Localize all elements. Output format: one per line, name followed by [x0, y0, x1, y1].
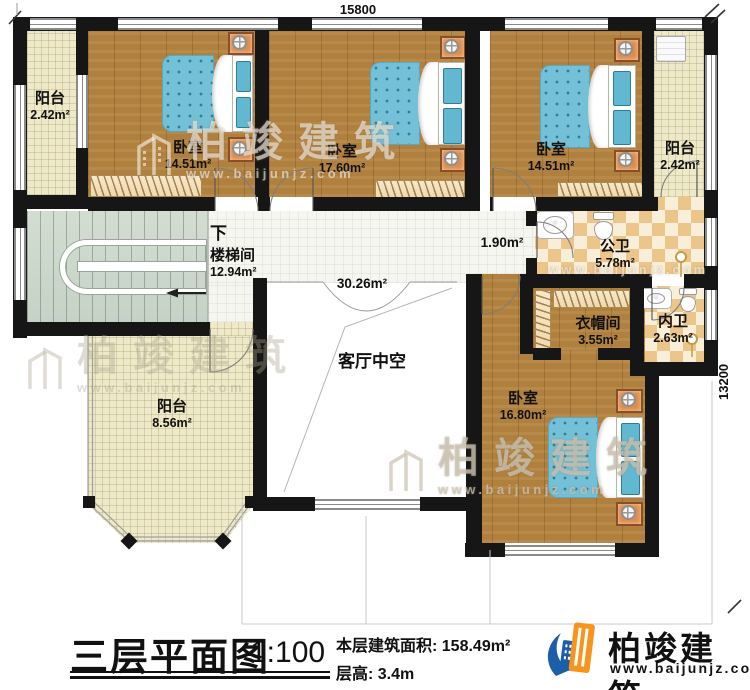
brand-name: 柏竣建筑: [608, 622, 750, 690]
lamp-icon: [444, 151, 459, 166]
bed-headboard: [616, 417, 643, 498]
wall: [526, 258, 537, 274]
sink-basin: [647, 293, 665, 304]
wall: [465, 543, 505, 557]
lamp-icon: [444, 39, 459, 54]
brand-url: www.baijunjz.com: [610, 660, 750, 676]
wall: [630, 288, 644, 362]
sink-basin: [543, 216, 567, 234]
wall: [258, 197, 270, 211]
toilet-tank: [679, 288, 697, 295]
dimension-height: 13200: [716, 352, 731, 412]
window: [505, 18, 608, 30]
nightstand: [614, 38, 640, 62]
bed-sheet: [588, 65, 608, 148]
window: [705, 218, 717, 266]
window: [118, 18, 278, 30]
bed-pillow: [236, 61, 251, 92]
window: [315, 499, 420, 510]
lamp-icon: [621, 505, 636, 520]
wall: [533, 348, 561, 360]
bed-headboard: [438, 62, 465, 145]
room-label-living-void: 客厅中空: [310, 352, 434, 372]
wall: [630, 362, 718, 376]
bed-sheet: [418, 62, 438, 145]
bed-sheet: [212, 55, 232, 132]
window: [14, 85, 26, 190]
window: [76, 75, 88, 148]
floor-plan-page: 15800 13200 阳台 2.42m² 卧室 14.51m² 卧室 17.6…: [0, 0, 750, 690]
window: [30, 18, 76, 30]
wall: [526, 211, 537, 226]
bed-mattress: [548, 417, 598, 498]
toilet: [590, 211, 618, 241]
wall: [76, 31, 88, 75]
wall: [88, 197, 215, 211]
floor-balcony-top-left: [27, 31, 76, 195]
dimension-width: 15800: [298, 2, 418, 17]
clothes-rack: [553, 290, 630, 308]
window: [312, 18, 422, 30]
air-conditioner: [656, 36, 686, 62]
wall: [684, 274, 704, 288]
lamp-icon: [618, 41, 633, 56]
floor-area-text: 本层建筑面积: 158.49m²: [336, 632, 510, 656]
wall: [490, 197, 493, 211]
bed-pillow: [236, 97, 251, 128]
nightstand: [228, 137, 254, 162]
floor-balcony-left: [88, 336, 253, 548]
nightstand: [616, 502, 643, 526]
bed-headboard: [608, 65, 636, 148]
wall: [642, 17, 654, 197]
sink: [640, 288, 672, 309]
wall: [253, 497, 315, 511]
wall: [465, 31, 480, 211]
sink: [536, 211, 574, 239]
bed-pillow: [621, 461, 640, 495]
window: [505, 545, 615, 556]
wardrobe: [375, 180, 465, 198]
stair-landing-bar: [78, 262, 206, 271]
lamp-icon: [232, 141, 247, 156]
window: [14, 228, 26, 300]
lamp-icon: [621, 392, 636, 407]
toilet-tank: [593, 212, 614, 220]
bed-pillow: [443, 68, 462, 104]
wall: [645, 362, 659, 557]
bed-sheet: [596, 417, 616, 498]
nightstand: [228, 32, 254, 55]
wall: [313, 197, 465, 211]
floor-hallway-south: [208, 283, 253, 322]
void-outline: [284, 288, 452, 492]
title-underline: [70, 676, 330, 679]
watermark-building-icon: [383, 443, 429, 493]
nightstand: [440, 148, 466, 172]
plan-scale: 1:100: [250, 636, 325, 670]
toilet-bowl: [680, 296, 696, 312]
nightstand: [614, 150, 640, 172]
wall: [648, 197, 658, 211]
window: [656, 18, 702, 30]
window: [705, 55, 717, 190]
bed-mattress: [162, 55, 214, 132]
wall: [536, 197, 648, 211]
brand-logo-icon: [540, 618, 606, 684]
window: [705, 290, 717, 340]
bed-pillow: [613, 71, 631, 106]
wall: [598, 348, 630, 360]
room-name: 客厅中空: [310, 352, 434, 372]
bed-headboard: [232, 55, 253, 132]
bed-pillow: [621, 423, 640, 457]
nightstand: [440, 36, 466, 59]
wall: [255, 31, 269, 197]
wall: [524, 274, 652, 288]
watermark-building-icon: [22, 341, 68, 391]
floor-balcony-door-patch: [210, 322, 253, 336]
wall: [253, 278, 267, 511]
bed-pillow: [613, 110, 631, 145]
wall: [615, 543, 659, 557]
title-underline: [70, 671, 330, 673]
bed-mattress: [540, 65, 590, 148]
toilet-bowl: [594, 221, 613, 240]
lamp-icon: [232, 35, 247, 50]
wardrobe: [557, 182, 643, 197]
wardrobe: [90, 175, 202, 197]
floor-height-text: 层高: 3.4m: [336, 660, 414, 684]
bed-mattress: [370, 62, 420, 145]
wall: [76, 148, 88, 209]
clothes-rack: [535, 290, 551, 350]
toilet: [677, 287, 700, 313]
nightstand: [616, 389, 643, 413]
floor-hallway: [208, 211, 535, 283]
bed-pillow: [443, 108, 462, 144]
wall: [466, 274, 482, 543]
lamp-icon: [618, 152, 633, 167]
wall: [13, 322, 210, 336]
